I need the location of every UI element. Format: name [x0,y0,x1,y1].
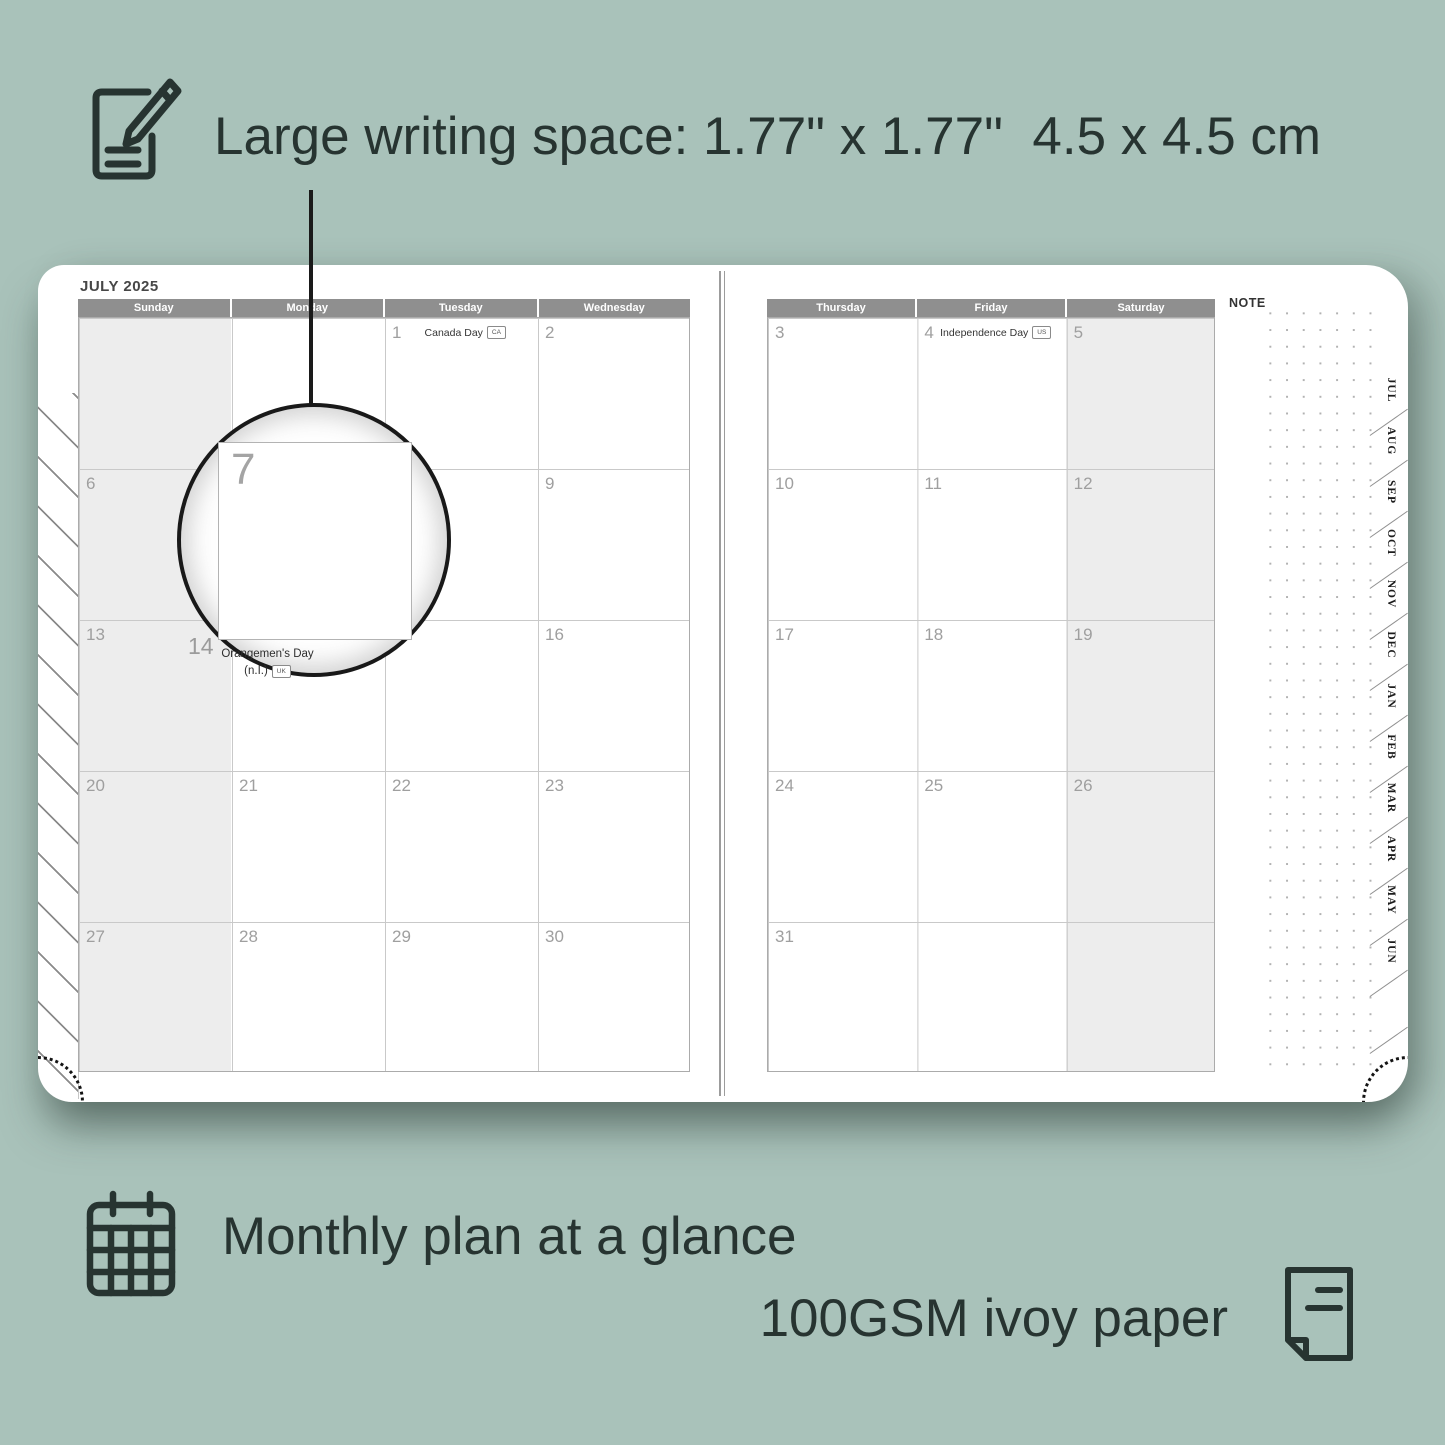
month-tab-may: MAY [1374,874,1408,925]
day-number: 1 [392,323,401,342]
date-cell: 9 [545,474,682,493]
day-number: 6 [86,474,95,493]
day-number: 5 [1074,323,1083,342]
holiday-label: Independence Day [940,327,1028,339]
day-number: 24 [775,776,794,795]
month-tab-oct: OCT [1374,517,1408,568]
month-tab-jul: JUL [1374,364,1408,415]
month-tab-jan: JAN [1374,670,1408,721]
day-number: 20 [86,776,105,795]
day-header-thursday: Thursday [767,299,915,317]
magnifier-circle: 7 [177,403,451,677]
date-cell: 5 [1074,323,1207,342]
date-cell: 2 [545,323,682,342]
date-cell: 19 [1074,625,1207,644]
date-cell: 28 [239,927,376,946]
dotted-corner-arc [1362,1056,1445,1148]
pointer-line [309,190,313,406]
month-tab-dec: DEC [1374,619,1408,670]
month-tab-feb: FEB [1374,721,1408,772]
ca-flag-badge: CA [487,326,506,339]
date-cell: 1Canada DayCA [392,323,529,342]
date-cell: 16 [545,625,682,644]
gutter-line [724,271,726,1096]
date-cell: 25 [924,776,1057,795]
paper-sheet-icon [1278,1266,1360,1362]
day-number: 23 [545,776,564,795]
month-tab-label: JUL [1385,377,1397,402]
date-cell: 3 [775,323,908,342]
right-gridlines [767,317,1215,1072]
month-title: JULY 2025 [80,278,159,295]
day-header-monday: Monday [232,299,384,317]
day-header-friday: Friday [917,299,1065,317]
date-cell: 4Independence DayUS [924,323,1057,342]
month-tab-label: AUG [1385,426,1397,455]
date-cell: 17 [775,625,908,644]
month-tab-label: MAR [1385,782,1397,812]
day-number: 22 [392,776,411,795]
month-tab-apr: APR [1374,823,1408,874]
note-label: NOTE [1229,296,1270,310]
day-number: 28 [239,927,258,946]
writing-pencil-icon [86,74,182,184]
month-tab-label: FEB [1385,734,1397,759]
day-number: 31 [775,927,794,946]
holiday-label: (n.I.) [244,665,268,678]
day-number: 25 [924,776,943,795]
month-tab-label: OCT [1385,529,1397,557]
month-tab-label: SEP [1385,479,1397,503]
left-page-day-headers: SundayMondayTuesdayWednesday [78,299,690,317]
day-number: 10 [775,474,794,493]
date-cell: 10 [775,474,908,493]
date-cell: 11 [924,474,1057,493]
day-number: 30 [545,927,564,946]
right-page-day-headers: ThursdayFridaySaturday [767,299,1215,317]
day-number: 3 [775,323,784,342]
date-cell: 27 [86,927,223,946]
day-number: 11 [924,474,942,493]
month-tab-label: JAN [1385,683,1397,708]
month-tab-label: JUN [1385,938,1397,963]
day-number: 26 [1074,776,1093,795]
date-cell: 21 [239,776,376,795]
month-tab-aug: AUG [1374,415,1408,466]
month-tab-label: DEC [1385,631,1397,658]
planner-spread: JULY 2025 SundayMondayTuesdayWednesday T… [38,265,1408,1102]
date-cell: 23 [545,776,682,795]
day-number: 19 [1074,625,1093,644]
date-cell: 18 [924,625,1057,644]
day-number: 17 [775,625,794,644]
day-number: 9 [545,474,554,493]
day-header-tuesday: Tuesday [385,299,537,317]
paper-caption: 100GSM ivoy paper [760,1288,1228,1349]
month-tab-label: NOV [1385,579,1397,608]
day-number: 12 [1074,474,1093,493]
us-flag-badge: US [1032,326,1051,339]
date-cell: 29 [392,927,529,946]
month-tab-jun: JUN [1374,925,1408,976]
day-header-wednesday: Wednesday [539,299,691,317]
note-dot-grid [1262,305,1376,1075]
magnified-day-number: 7 [231,445,255,495]
right-page-month-grid [767,317,1215,1072]
calendar-icon [86,1190,176,1298]
page-edge-hatching [38,393,79,1099]
date-cell: 22 [392,776,529,795]
date-cell: 12 [1074,474,1207,493]
date-cell: 26 [1074,776,1207,795]
holiday-label: Canada Day [425,327,483,339]
holiday-label: Orangemen's Day [191,648,344,660]
day-number: 29 [392,927,411,946]
day-header-saturday: Saturday [1067,299,1215,317]
holiday-label: (n.I.) UK [191,665,344,678]
date-cell: 20 [86,776,223,795]
product-image: Large writing space: 1.77" x 1.77" 4.5 x… [0,0,1445,1445]
uk-flag-badge: UK [272,665,291,678]
month-tab-nov: NOV [1374,568,1408,619]
dotted-corner-arc [0,1056,84,1148]
day-number: 13 [86,625,105,644]
day-number: 2 [545,323,554,342]
monthly-caption: Monthly plan at a glance [222,1206,797,1267]
magnified-day-cell: 7 [218,442,412,640]
date-cell: 30 [545,927,682,946]
day-header-sunday: Sunday [78,299,230,317]
day-number: 16 [545,625,564,644]
month-tab-sep: SEP [1374,466,1408,517]
date-cell: 31 [775,927,908,946]
day-number: 18 [924,625,943,644]
month-tab-mar: MAR [1374,772,1408,823]
day-number: 27 [86,927,105,946]
day-number: 4 [924,323,933,342]
month-tab-label: APR [1385,835,1397,862]
gutter-line [719,271,721,1096]
month-tab-label: MAY [1385,885,1397,914]
date-cell: 24 [775,776,908,795]
top-caption: Large writing space: 1.77" x 1.77" 4.5 x… [214,106,1321,167]
day-number: 21 [239,776,258,795]
